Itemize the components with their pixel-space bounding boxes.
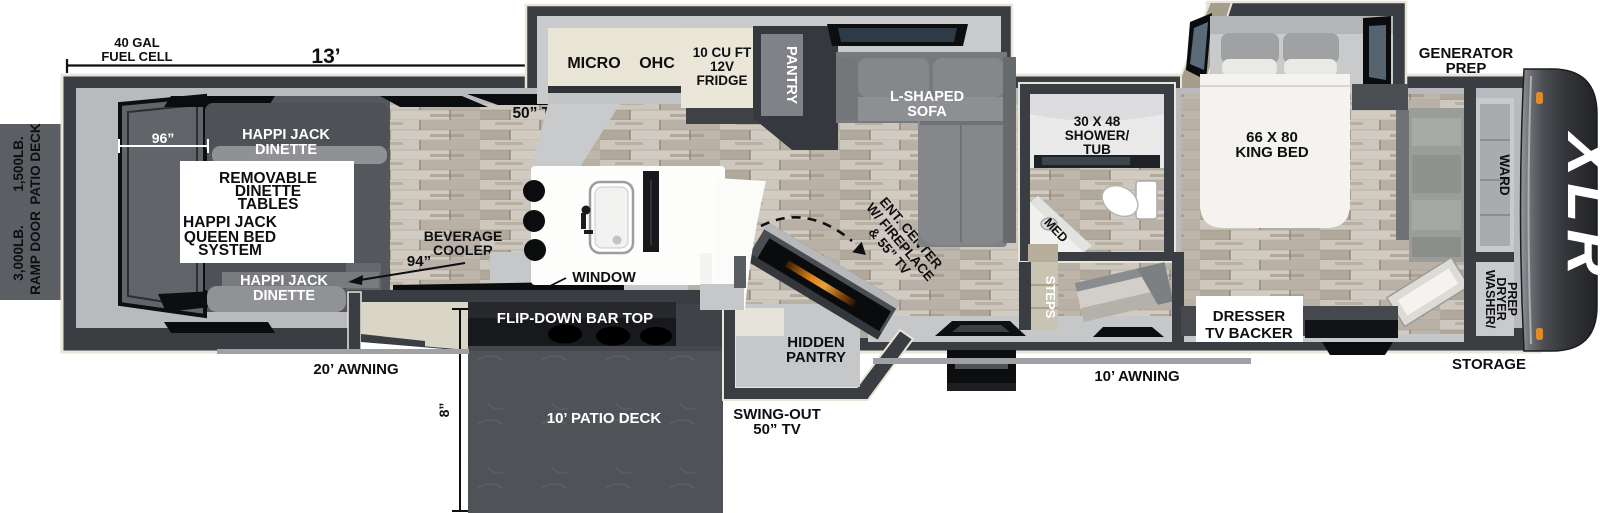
svg-text:PREP: PREP: [1505, 282, 1519, 316]
svg-text:MICRO: MICRO: [567, 55, 620, 72]
svg-text:FUEL CELL: FUEL CELL: [101, 49, 172, 64]
svg-text:12V: 12V: [710, 59, 734, 74]
svg-text:13’: 13’: [311, 45, 340, 68]
svg-text:KING BED: KING BED: [1235, 144, 1309, 161]
svg-text:10 CU FT: 10 CU FT: [693, 45, 752, 60]
svg-text:40 GAL: 40 GAL: [114, 35, 160, 50]
svg-text:SYSTEM: SYSTEM: [198, 242, 262, 259]
svg-text:SHOWER/: SHOWER/: [1065, 128, 1130, 143]
svg-text:8”: 8”: [436, 403, 452, 418]
svg-text:RAMP DOOR: RAMP DOOR: [28, 211, 43, 295]
svg-text:1,500LB.: 1,500LB.: [11, 136, 26, 192]
svg-text:WINDOW: WINDOW: [572, 270, 636, 286]
svg-text:TV BACKER: TV BACKER: [1205, 325, 1293, 342]
svg-text:OHC: OHC: [639, 55, 675, 72]
svg-text:3,000LB.: 3,000LB.: [11, 225, 26, 281]
svg-text:HAPPI JACK: HAPPI JACK: [242, 127, 330, 143]
svg-text:DRESSER: DRESSER: [1213, 308, 1286, 325]
svg-text:50” TV: 50” TV: [753, 421, 801, 438]
svg-text:PREP: PREP: [1446, 60, 1487, 77]
svg-text:STEPS: STEPS: [1043, 276, 1058, 319]
svg-text:TABLES: TABLES: [238, 196, 299, 213]
svg-text:30 X 48: 30 X 48: [1074, 114, 1121, 129]
svg-text:10’ PATIO DECK: 10’ PATIO DECK: [547, 410, 662, 427]
svg-text:20’ AWNING: 20’ AWNING: [313, 361, 398, 378]
svg-text:L-SHAPED: L-SHAPED: [890, 89, 964, 105]
svg-text:FLIP-DOWN BAR TOP: FLIP-DOWN BAR TOP: [497, 310, 653, 327]
svg-text:WARD: WARD: [1497, 154, 1512, 195]
svg-text:SOFA: SOFA: [907, 104, 947, 120]
svg-text:DINETTE: DINETTE: [253, 288, 315, 304]
svg-text:XLR: XLR: [1554, 131, 1600, 283]
svg-text:PATIO DECK: PATIO DECK: [28, 123, 43, 205]
svg-text:PANTRY: PANTRY: [783, 46, 799, 104]
svg-text:DINETTE: DINETTE: [255, 142, 317, 158]
svg-text:FRIDGE: FRIDGE: [696, 73, 747, 88]
svg-text:PANTRY: PANTRY: [786, 349, 846, 366]
svg-text:COOLER: COOLER: [433, 242, 493, 258]
svg-text:STORAGE: STORAGE: [1452, 356, 1526, 373]
svg-text:TUB: TUB: [1083, 142, 1111, 157]
svg-text:10’ AWNING: 10’ AWNING: [1094, 368, 1179, 385]
svg-text:96”: 96”: [152, 130, 175, 146]
svg-text:HAPPI JACK: HAPPI JACK: [240, 273, 328, 289]
svg-text:94”: 94”: [407, 253, 431, 270]
